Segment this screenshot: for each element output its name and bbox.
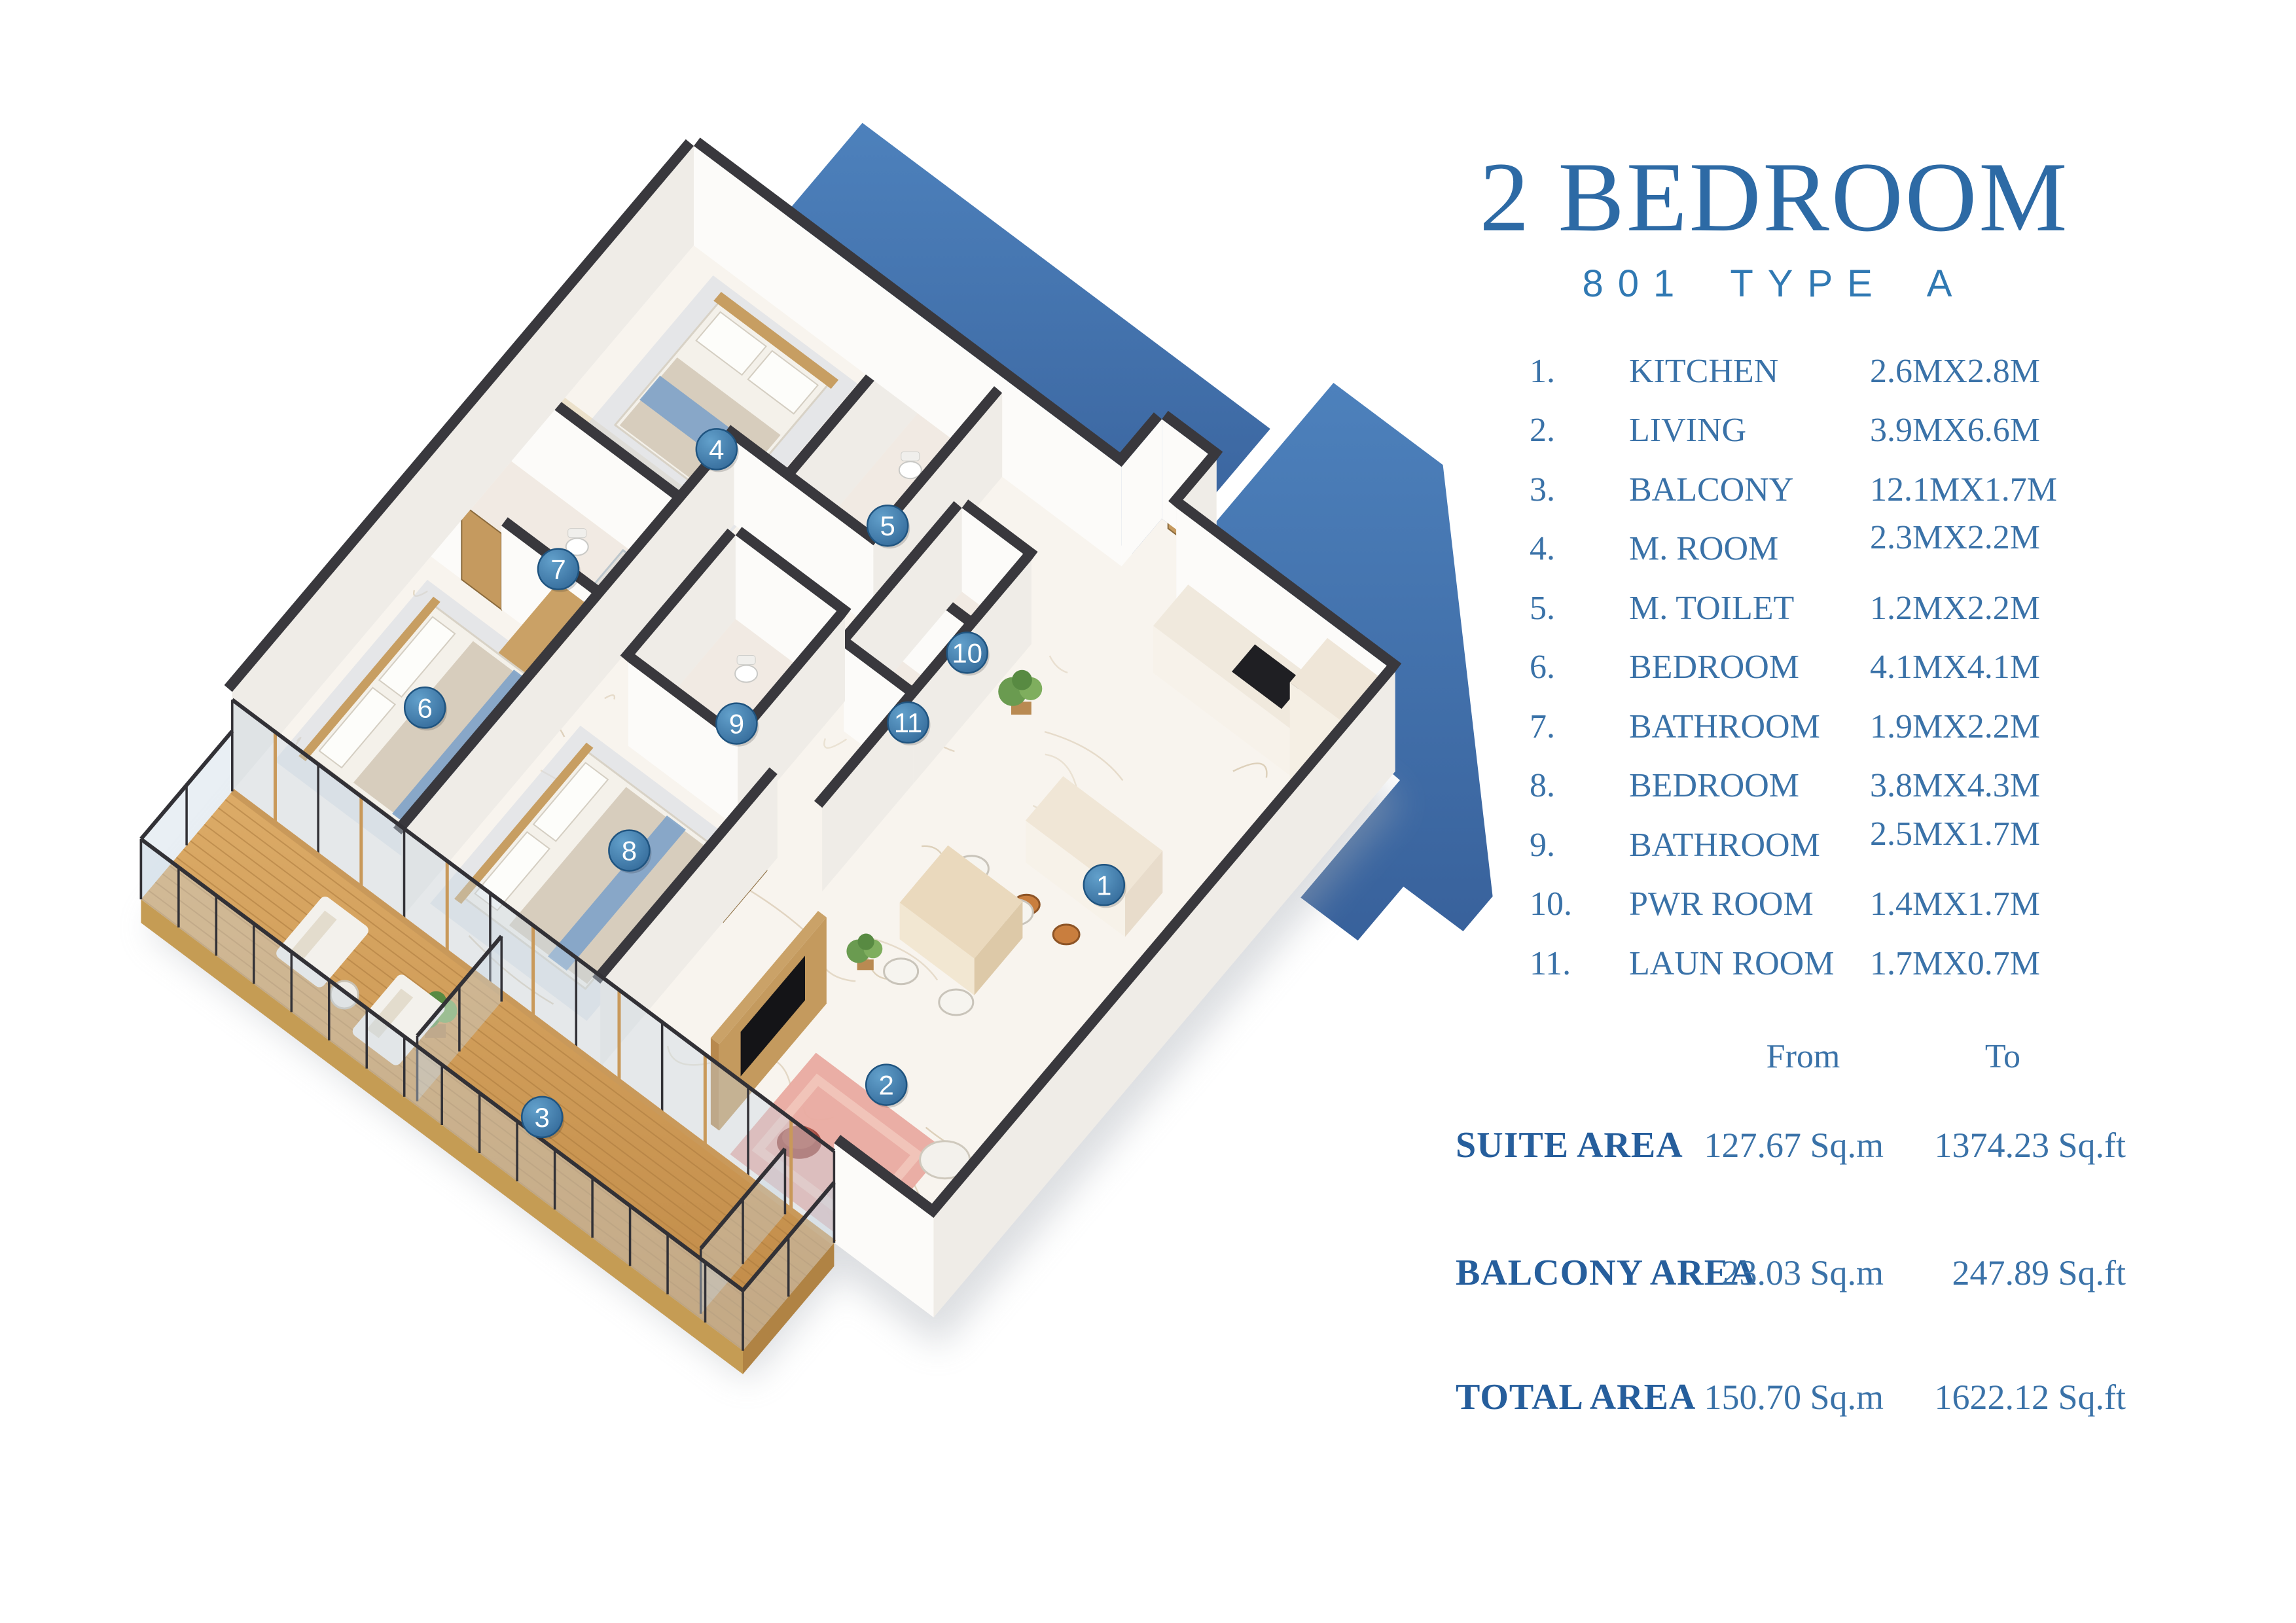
svg-text:5: 5 bbox=[880, 510, 895, 541]
room-list-item: 6. BEDROOM 4.1MX4.1M bbox=[1530, 638, 2061, 698]
room-dimension: 1.7MX0.7M bbox=[1870, 944, 2061, 983]
room-dimension: 1.2MX2.2M bbox=[1870, 589, 2061, 628]
svg-text:9: 9 bbox=[729, 709, 744, 740]
room-name: M. TOILET bbox=[1629, 589, 1870, 628]
room-number: 10. bbox=[1530, 885, 1629, 923]
room-dimension: 2.3MX2.2M bbox=[1870, 518, 2061, 557]
room-list-item: 7. BATHROOM 1.9MX2.2M bbox=[1530, 697, 2061, 757]
room-name: LIVING bbox=[1629, 411, 1870, 450]
room-number: 11. bbox=[1530, 944, 1629, 983]
room-list-item: 9. BATHROOM 2.5MX1.7M bbox=[1530, 815, 2061, 875]
room-name: KITCHEN bbox=[1629, 352, 1870, 391]
room-name: BEDROOM bbox=[1629, 648, 1870, 687]
room-list-item: 2. LIVING 3.9MX6.6M bbox=[1530, 401, 2061, 461]
svg-text:4: 4 bbox=[709, 434, 724, 465]
room-list-item: 10. PWR ROOM 1.4MX1.7M bbox=[1530, 875, 2061, 935]
svg-text:3: 3 bbox=[535, 1102, 550, 1133]
room-list-item: 4. M. ROOM 2.3MX2.2M bbox=[1530, 520, 2061, 579]
room-number: 8. bbox=[1530, 766, 1629, 805]
room-name: M. ROOM bbox=[1629, 529, 1870, 568]
room-dimension: 4.1MX4.1M bbox=[1870, 648, 2061, 687]
room-name: BATHROOM bbox=[1629, 826, 1870, 865]
svg-text:6: 6 bbox=[418, 692, 433, 723]
room-dimension-list: 1. KITCHEN 2.6MX2.8M 2. LIVING 3.9MX6.6M… bbox=[1530, 342, 2061, 993]
room-number: 1. bbox=[1530, 352, 1629, 391]
room-name: BALCONY bbox=[1629, 471, 1870, 509]
room-name: LAUN ROOM bbox=[1629, 944, 1870, 983]
floor-plan-brochure-page: { "title": "2 BEDROOM", "subtitle": "801… bbox=[0, 0, 2296, 1623]
room-dimension: 2.6MX2.8M bbox=[1870, 352, 2061, 391]
page-subtitle: 801 TYPE A bbox=[1437, 262, 2111, 306]
room-dimension: 1.9MX2.2M bbox=[1870, 707, 2061, 746]
svg-text:10: 10 bbox=[952, 637, 982, 668]
room-number: 3. bbox=[1530, 471, 1629, 509]
room-dimension: 12.1MX1.7M bbox=[1870, 471, 2061, 509]
room-dimension: 1.4MX1.7M bbox=[1870, 885, 2061, 923]
room-number: 6. bbox=[1530, 648, 1629, 687]
page-title: 2 BEDROOM bbox=[1437, 145, 2111, 250]
room-number: 9. bbox=[1530, 826, 1629, 865]
svg-text:1: 1 bbox=[1096, 870, 1111, 901]
room-number: 2. bbox=[1530, 411, 1629, 450]
room-number: 4. bbox=[1530, 529, 1629, 568]
room-number: 5. bbox=[1530, 589, 1629, 628]
room-dimension: 2.5MX1.7M bbox=[1870, 815, 2061, 853]
svg-text:11: 11 bbox=[894, 707, 923, 738]
room-list-item: 5. M. TOILET 1.2MX2.2M bbox=[1530, 579, 2061, 638]
room-dimension: 3.8MX4.3M bbox=[1870, 766, 2061, 805]
room-number: 7. bbox=[1530, 707, 1629, 746]
svg-text:8: 8 bbox=[622, 836, 637, 866]
room-name: PWR ROOM bbox=[1629, 885, 1870, 923]
svg-text:7: 7 bbox=[550, 554, 565, 585]
svg-text:2: 2 bbox=[879, 1070, 894, 1101]
room-list-item: 3. BALCONY 12.1MX1.7M bbox=[1530, 460, 2061, 520]
room-list-item: 8. BEDROOM 3.8MX4.3M bbox=[1530, 757, 2061, 816]
room-name: BATHROOM bbox=[1629, 707, 1870, 746]
room-list-item: 1. KITCHEN 2.6MX2.8M bbox=[1530, 342, 2061, 401]
room-list-item: 11. LAUN ROOM 1.7MX0.7M bbox=[1530, 934, 2061, 993]
room-dimension: 3.9MX6.6M bbox=[1870, 411, 2061, 450]
room-name: BEDROOM bbox=[1629, 766, 1870, 805]
